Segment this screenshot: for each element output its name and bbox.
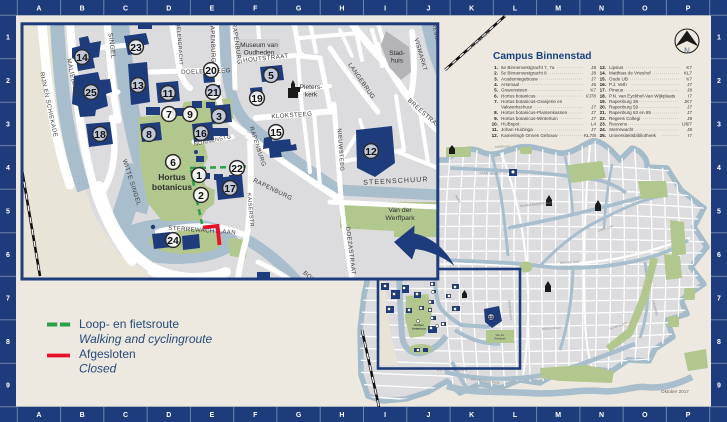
svg-text:17: 17 [224,184,236,195]
svg-text:5e Binnenvestgracht 8: 5e Binnenvestgracht 8 [501,71,547,76]
svg-text:14.: 14. [600,71,606,76]
svg-text:J: J [426,5,430,12]
svg-text:Oude UB: Oude UB [609,76,628,81]
svg-text:16: 16 [195,129,207,140]
svg-text:Sterrewacht: Sterrewacht [609,127,634,132]
svg-text:botanicus: botanicus [152,182,192,192]
svg-text:5: 5 [268,71,274,82]
svg-text:J7: J7 [591,110,596,115]
svg-text:1.: 1. [494,65,498,70]
svg-text:J8: J8 [591,71,596,76]
svg-text:D: D [166,5,171,12]
svg-text:K7: K7 [686,76,692,81]
svg-text:J7: J7 [687,82,692,87]
svg-text:J7: J7 [591,127,596,132]
svg-text:3.: 3. [494,76,498,81]
svg-text:12: 12 [488,315,494,320]
svg-text:Oudheden: Oudheden [244,50,275,57]
svg-text:12: 12 [365,147,377,158]
svg-text:12.: 12. [492,133,498,138]
svg-text:K: K [469,5,474,12]
svg-text:14: 14 [76,53,88,64]
svg-text:K7: K7 [686,65,692,70]
svg-text:2: 2 [198,191,204,202]
svg-text:3: 3 [6,121,10,128]
svg-text:Arsenaal: Arsenaal [501,82,519,87]
svg-text:A: A [36,412,41,419]
svg-text:I7: I7 [688,133,692,138]
svg-text:J7: J7 [687,105,692,110]
svg-text:I: I [384,5,386,12]
svg-text:6: 6 [717,252,721,259]
svg-text:Loop- en fietsroute: Loop- en fietsroute [79,317,179,331]
svg-text:7.: 7. [494,99,498,104]
svg-text:IJ6/7: IJ6/7 [682,122,692,127]
svg-text:N: N [684,47,690,56]
svg-text:Werffpark: Werffpark [494,337,506,341]
svg-text:KL7/8: KL7/8 [584,133,596,138]
svg-text:2: 2 [717,78,721,85]
svg-text:J7: J7 [591,105,596,110]
svg-text:Hortus: Hortus [158,172,186,182]
svg-text:P.N. van Eyckhof-Van Wijkplaat: P.N. van Eyckhof-Van Wijkplaats [609,93,676,98]
svg-text:5e Binnenvestgracht 7, 7a: 5e Binnenvestgracht 7, 7a [501,65,555,70]
svg-text:Rapenburg 63 en 65: Rapenburg 63 en 65 [609,110,651,115]
svg-text:J7: J7 [687,110,692,115]
svg-text:Closed: Closed [79,362,117,376]
svg-text:9: 9 [187,110,193,121]
svg-text:G: G [296,5,302,12]
svg-text:9.: 9. [494,116,498,121]
svg-text:9: 9 [717,382,721,389]
svg-text:Reuvens: Reuvens [609,122,628,127]
svg-text:Pineus: Pineus [609,88,624,93]
svg-text:20: 20 [205,66,217,77]
svg-text:9: 9 [6,382,10,389]
svg-text:7: 7 [6,295,10,302]
svg-text:J8: J8 [591,65,596,70]
svg-text:3: 3 [717,121,721,128]
svg-text:Museum van: Museum van [240,42,278,49]
svg-text:1: 1 [717,34,721,41]
svg-text:HUBspot: HUBspot [501,122,520,127]
svg-text:4: 4 [717,165,721,172]
svg-text:1: 1 [196,171,202,182]
svg-text:F: F [253,5,258,12]
svg-text:H: H [339,5,344,12]
svg-text:Hortus botanicus-Oranjerie en: Hortus botanicus-Oranjerie en [501,99,563,104]
svg-text:21.: 21. [600,110,606,115]
svg-text:Afgesloten: Afgesloten [79,347,136,361]
svg-text:11: 11 [163,89,174,100]
svg-text:3: 3 [216,112,222,123]
svg-text:P: P [686,412,691,419]
svg-text:1: 1 [6,34,10,41]
svg-text:7: 7 [166,110,172,121]
svg-text:Stad-: Stad- [389,50,405,57]
svg-text:F: F [253,412,258,419]
svg-text:13.: 13. [600,65,606,70]
svg-text:16.: 16. [600,82,606,87]
svg-text:B: B [80,5,85,12]
svg-text:5: 5 [6,208,10,215]
svg-text:K7: K7 [590,88,596,93]
svg-text:botanicus: botanicus [412,327,426,331]
svg-text:C: C [123,5,128,12]
svg-text:10.: 10. [492,122,498,127]
svg-text:P.J. Veth: P.J. Veth [609,82,627,87]
svg-text:19.: 19. [600,99,606,104]
svg-text:Kamerlingh Onnes Gebouw: Kamerlingh Onnes Gebouw [501,133,558,138]
svg-text:5.: 5. [494,88,498,93]
svg-text:24.: 24. [600,127,606,132]
svg-text:Rapenburg 38: Rapenburg 38 [609,99,639,104]
svg-text:N: N [599,412,604,419]
svg-text:Regens Collegi: Regens Collegi [609,116,640,121]
svg-text:6: 6 [6,252,10,259]
svg-text:Academiegebouw: Academiegebouw [501,76,538,81]
svg-text:18: 18 [94,130,106,141]
svg-text:22.: 22. [600,116,606,121]
svg-text:J6: J6 [591,82,596,87]
svg-text:25.: 25. [600,133,606,138]
svg-text:I: I [384,412,386,419]
svg-text:8.: 8. [494,110,498,115]
svg-text:Hortus botanicus-Wintertuin: Hortus botanicus-Wintertuin [501,116,558,121]
svg-text:Rapenburg 59: Rapenburg 59 [609,105,639,110]
svg-text:JK7: JK7 [684,99,692,104]
svg-text:8: 8 [146,130,152,141]
svg-text:Universiteitsbibliotheek: Universiteitsbibliotheek [609,133,657,138]
svg-text:19: 19 [251,94,263,105]
svg-text:J8: J8 [687,116,692,121]
svg-text:N: N [599,5,604,12]
svg-text:P: P [686,5,691,12]
svg-text:L: L [513,412,518,419]
svg-text:Werffpark: Werffpark [385,215,415,222]
svg-text:L: L [513,5,518,12]
svg-text:J8: J8 [687,88,692,93]
svg-text:L4: L4 [591,122,597,127]
svg-text:O: O [642,412,648,419]
svg-text:Oktober 2017: Oktober 2017 [661,389,689,394]
svg-text:B: B [80,412,85,419]
svg-text:E: E [210,5,215,12]
svg-text:18.: 18. [600,93,606,98]
svg-text:6.: 6. [494,93,498,98]
svg-text:C: C [123,412,128,419]
svg-text:4.: 4. [494,82,498,87]
svg-text:24: 24 [167,236,179,247]
svg-text:J7: J7 [591,76,596,81]
svg-text:O: O [642,5,648,12]
svg-text:13: 13 [132,81,144,92]
svg-text:Johan Huizinga: Johan Huizinga [501,127,533,132]
svg-text:8: 8 [6,339,10,346]
svg-text:K: K [469,412,474,419]
svg-text:15.: 15. [600,76,606,81]
svg-text:20.: 20. [600,105,606,110]
svg-text:23.: 23. [600,122,606,127]
svg-text:J8: J8 [687,127,692,132]
svg-text:25: 25 [85,88,97,99]
svg-text:4: 4 [6,165,10,172]
svg-text:A: A [36,5,41,12]
svg-text:OUDE VEST: OUDE VEST [480,171,498,176]
svg-text:5: 5 [717,208,721,215]
svg-text:Lipsius: Lipsius [609,65,624,70]
svg-text:Matthias de Vrieshof: Matthias de Vrieshof [609,71,651,76]
svg-text:MAREDIJK: MAREDIJK [495,144,510,149]
svg-text:I7: I7 [688,93,692,98]
svg-text:2.: 2. [494,71,498,76]
svg-text:J: J [426,412,430,419]
svg-text:2: 2 [6,78,10,85]
svg-text:Gravensteen: Gravensteen [501,88,528,93]
svg-text:Hortus botanicus-Plantenkassen: Hortus botanicus-Plantenkassen [501,110,568,115]
svg-text:Van der: Van der [388,207,412,214]
svg-text:I/J78: I/J78 [586,93,596,98]
svg-text:KL7: KL7 [684,71,693,76]
svg-text:Hortus botanicus: Hortus botanicus [501,93,536,98]
svg-text:Pieters-: Pieters- [300,84,323,91]
svg-text:J7: J7 [591,116,596,121]
svg-text:11.: 11. [492,127,498,132]
svg-text:15: 15 [270,128,282,139]
svg-text:21: 21 [207,88,219,99]
svg-text:D: D [166,412,171,419]
svg-text:E: E [210,412,215,419]
svg-text:17.: 17. [600,88,606,93]
svg-text:M: M [555,412,561,419]
svg-text:8: 8 [717,339,721,346]
svg-text:kerk: kerk [305,92,318,99]
svg-text:H: H [339,412,344,419]
svg-text:22: 22 [231,164,243,175]
svg-text:7: 7 [717,295,721,302]
svg-text:Vakwerkschuur: Vakwerkschuur [501,105,533,110]
svg-text:23: 23 [130,43,142,54]
svg-text:6: 6 [170,158,176,169]
svg-text:Campus Binnenstad: Campus Binnenstad [493,51,592,62]
svg-text:huis: huis [391,58,404,65]
svg-text:Van der: Van der [496,333,505,337]
svg-text:M: M [555,5,561,12]
svg-text:G: G [296,412,302,419]
svg-text:Walking and cyclingroute: Walking and cyclingroute [79,332,213,346]
